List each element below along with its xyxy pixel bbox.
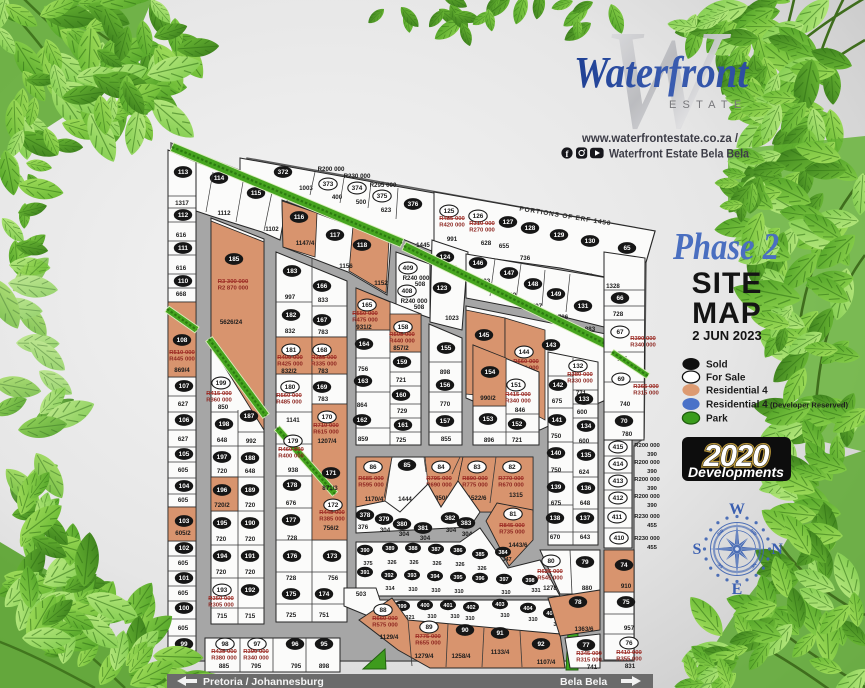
svg-text:136: 136 xyxy=(581,485,592,492)
svg-text:153: 153 xyxy=(483,416,494,423)
svg-text:R3 300 000: R3 300 000 xyxy=(218,279,249,285)
svg-text:100: 100 xyxy=(179,605,190,612)
svg-text:R400 000: R400 000 xyxy=(277,355,303,361)
svg-text:R440 000: R440 000 xyxy=(389,338,415,344)
svg-text:174: 174 xyxy=(319,591,330,598)
svg-text:314: 314 xyxy=(385,586,395,592)
svg-text:380: 380 xyxy=(397,521,408,528)
svg-text:382: 382 xyxy=(445,515,456,522)
svg-text:176: 176 xyxy=(287,553,298,560)
svg-text:720: 720 xyxy=(245,536,256,543)
svg-text:600: 600 xyxy=(579,438,590,445)
svg-text:347: 347 xyxy=(502,557,511,563)
svg-text:750: 750 xyxy=(551,467,562,474)
svg-text:750: 750 xyxy=(551,433,562,440)
svg-text:728: 728 xyxy=(286,575,297,582)
svg-text:783: 783 xyxy=(318,396,329,403)
svg-text:75: 75 xyxy=(622,599,630,606)
svg-text:R200 000: R200 000 xyxy=(634,460,660,466)
svg-text:R655 000: R655 000 xyxy=(415,640,441,646)
svg-text:411: 411 xyxy=(612,514,623,521)
svg-text:79: 79 xyxy=(581,559,589,566)
svg-text:855: 855 xyxy=(441,436,452,443)
svg-text:675: 675 xyxy=(551,500,562,507)
svg-text:R335 000: R335 000 xyxy=(311,361,337,367)
svg-text:195: 195 xyxy=(217,520,228,527)
svg-text:623: 623 xyxy=(381,207,392,214)
svg-text:R595 000: R595 000 xyxy=(358,482,384,488)
svg-text:756: 756 xyxy=(358,366,369,373)
svg-text:326: 326 xyxy=(432,561,441,567)
svg-text:R385 000: R385 000 xyxy=(319,516,345,522)
svg-text:415: 415 xyxy=(613,444,624,451)
svg-text:168: 168 xyxy=(317,347,328,354)
svg-text:605: 605 xyxy=(178,467,189,474)
svg-text:R485 000: R485 000 xyxy=(439,216,465,222)
svg-text:169: 169 xyxy=(317,384,328,391)
svg-text:108: 108 xyxy=(177,337,188,344)
svg-text:379: 379 xyxy=(379,516,390,523)
svg-text:R550 000: R550 000 xyxy=(352,311,378,317)
svg-text:728: 728 xyxy=(287,535,298,542)
svg-text:408: 408 xyxy=(402,288,413,295)
svg-text:397: 397 xyxy=(499,577,508,583)
svg-text:138: 138 xyxy=(550,515,561,522)
svg-text:102: 102 xyxy=(179,545,190,552)
svg-text:871/3: 871/3 xyxy=(322,485,338,492)
svg-text:304: 304 xyxy=(446,527,457,534)
svg-text:67: 67 xyxy=(616,329,624,336)
svg-text:R390 000: R390 000 xyxy=(243,649,269,655)
svg-text:1112: 1112 xyxy=(217,210,231,217)
svg-text:145: 145 xyxy=(479,332,490,339)
svg-text:402: 402 xyxy=(466,605,475,611)
svg-text:Residential 4: Residential 4 xyxy=(706,400,768,411)
svg-text:128: 128 xyxy=(525,225,536,232)
svg-text:375: 375 xyxy=(377,193,388,200)
svg-text:310: 310 xyxy=(465,616,474,622)
svg-text:721: 721 xyxy=(512,437,523,444)
svg-text:373: 373 xyxy=(323,181,334,188)
svg-text:1107/4: 1107/4 xyxy=(537,659,556,666)
svg-text:5626/24: 5626/24 xyxy=(220,319,243,326)
svg-text:670: 670 xyxy=(550,534,561,541)
svg-text:1147/4: 1147/4 xyxy=(296,240,315,247)
svg-text:R510 000: R510 000 xyxy=(169,350,195,356)
svg-text:1279/4: 1279/4 xyxy=(415,653,434,660)
svg-text:179: 179 xyxy=(288,438,299,445)
svg-text:R355 000: R355 000 xyxy=(616,656,642,662)
svg-text:R230 000: R230 000 xyxy=(344,173,371,180)
svg-text:304: 304 xyxy=(420,535,431,542)
svg-text:395: 395 xyxy=(453,575,462,581)
svg-text:196: 196 xyxy=(217,487,228,494)
svg-text:600: 600 xyxy=(577,409,588,416)
svg-text:167: 167 xyxy=(317,317,328,324)
svg-text:898: 898 xyxy=(440,369,451,376)
svg-text:414: 414 xyxy=(613,461,624,468)
svg-text:SITE: SITE xyxy=(692,267,763,300)
svg-text:161: 161 xyxy=(398,422,409,429)
svg-text:165: 165 xyxy=(362,302,373,309)
svg-text:326: 326 xyxy=(387,560,396,566)
svg-text:725: 725 xyxy=(286,612,297,619)
svg-text:R625 000: R625 000 xyxy=(537,569,563,575)
svg-text:997: 997 xyxy=(285,294,296,301)
svg-text:Residential 4: Residential 4 xyxy=(706,386,768,397)
svg-text:376: 376 xyxy=(358,524,369,531)
svg-text:182: 182 xyxy=(286,312,297,319)
svg-text:R670 000: R670 000 xyxy=(498,482,524,488)
svg-text:846: 846 xyxy=(515,407,526,414)
svg-text:106: 106 xyxy=(179,417,190,424)
svg-text:R445 000: R445 000 xyxy=(319,510,345,516)
svg-text:770: 770 xyxy=(440,401,451,408)
svg-text:126: 126 xyxy=(473,213,484,220)
svg-text:R330 000: R330 000 xyxy=(567,378,593,384)
svg-text:92: 92 xyxy=(537,641,545,648)
svg-text:728: 728 xyxy=(613,311,624,318)
svg-text:655: 655 xyxy=(499,243,510,250)
svg-text:2 JUN 2023: 2 JUN 2023 xyxy=(692,328,761,343)
svg-text:648: 648 xyxy=(217,437,228,444)
svg-text:R560 000: R560 000 xyxy=(276,393,302,399)
svg-text:198: 198 xyxy=(219,421,230,428)
svg-text:304: 304 xyxy=(380,527,391,534)
svg-text:331: 331 xyxy=(531,588,540,594)
svg-text:R2 870 000: R2 870 000 xyxy=(218,285,249,291)
svg-text:R775 000: R775 000 xyxy=(462,482,488,488)
svg-text:154: 154 xyxy=(485,369,496,376)
svg-text:W: W xyxy=(729,501,745,518)
svg-text:729: 729 xyxy=(397,408,408,415)
svg-text:199: 199 xyxy=(216,380,227,387)
svg-text:R230 000: R230 000 xyxy=(634,536,660,542)
svg-text:741: 741 xyxy=(587,664,598,671)
svg-text:85: 85 xyxy=(403,462,411,469)
svg-text:R425 000: R425 000 xyxy=(277,361,303,367)
svg-text:127: 127 xyxy=(503,219,514,226)
svg-text:409: 409 xyxy=(403,265,414,272)
svg-text:783: 783 xyxy=(318,329,329,336)
svg-text:885: 885 xyxy=(219,663,230,670)
svg-text:133: 133 xyxy=(579,396,590,403)
svg-text:192: 192 xyxy=(245,587,256,594)
svg-text:66: 66 xyxy=(616,295,624,302)
svg-text:R360 000: R360 000 xyxy=(206,397,232,403)
svg-text:R775 000: R775 000 xyxy=(415,634,441,640)
svg-text:387: 387 xyxy=(431,547,440,553)
svg-text:627: 627 xyxy=(178,401,189,408)
svg-text:143: 143 xyxy=(546,342,557,349)
svg-text:R710 000: R710 000 xyxy=(313,423,339,429)
svg-text:375: 375 xyxy=(363,561,372,567)
svg-text:720: 720 xyxy=(245,569,256,576)
svg-text:82: 82 xyxy=(508,464,516,471)
svg-text:R485 000: R485 000 xyxy=(276,399,302,405)
svg-text:R365 000: R365 000 xyxy=(633,384,659,390)
svg-text:R200 000: R200 000 xyxy=(318,166,345,173)
svg-text:390: 390 xyxy=(647,469,658,475)
svg-text:310: 310 xyxy=(408,587,417,593)
svg-text:188: 188 xyxy=(245,455,256,462)
svg-text:896: 896 xyxy=(484,437,495,444)
svg-text:Sold: Sold xyxy=(706,360,728,371)
svg-text:137: 137 xyxy=(580,515,591,522)
svg-text:R415 000: R415 000 xyxy=(505,392,531,398)
svg-text:Park: Park xyxy=(706,414,728,425)
svg-text:166: 166 xyxy=(317,283,328,290)
svg-text:183: 183 xyxy=(287,268,298,275)
svg-text:736: 736 xyxy=(520,255,531,262)
svg-text:864: 864 xyxy=(357,402,368,409)
svg-text:1328: 1328 xyxy=(606,283,620,290)
svg-text:155: 155 xyxy=(441,345,452,352)
svg-text:118: 118 xyxy=(357,242,368,249)
svg-text:187: 187 xyxy=(244,413,255,420)
svg-text:740: 740 xyxy=(620,401,631,408)
svg-text:130: 130 xyxy=(585,238,596,245)
svg-text:383: 383 xyxy=(461,520,472,527)
svg-text:627: 627 xyxy=(178,436,189,443)
svg-text:392: 392 xyxy=(384,573,393,579)
svg-text:R340 000: R340 000 xyxy=(505,398,531,404)
svg-text:910: 910 xyxy=(621,583,632,590)
svg-text:R795 000: R795 000 xyxy=(426,476,452,482)
svg-text:R315 000: R315 000 xyxy=(633,390,659,396)
svg-text:832: 832 xyxy=(285,328,296,335)
svg-text:R435 000: R435 000 xyxy=(211,649,237,655)
svg-text:86: 86 xyxy=(369,464,377,471)
svg-text:Waterfront: Waterfront xyxy=(574,48,750,97)
svg-text:R385 000: R385 000 xyxy=(311,355,337,361)
svg-text:132: 132 xyxy=(573,363,584,370)
svg-text:123: 123 xyxy=(437,285,448,292)
svg-text:1156: 1156 xyxy=(339,263,353,270)
svg-text:R660 000: R660 000 xyxy=(372,616,398,622)
svg-text:80: 80 xyxy=(547,558,555,565)
svg-text:832/2: 832/2 xyxy=(281,368,297,375)
svg-text:310: 310 xyxy=(454,589,463,595)
svg-text:R735 000: R735 000 xyxy=(499,529,525,535)
svg-text:795: 795 xyxy=(251,663,262,670)
svg-text:859: 859 xyxy=(358,436,369,443)
svg-text:310: 310 xyxy=(450,614,459,620)
svg-text:648: 648 xyxy=(580,500,591,507)
svg-text:144: 144 xyxy=(519,349,530,356)
svg-text:1152: 1152 xyxy=(374,280,388,287)
svg-text:R410 000: R410 000 xyxy=(616,650,642,656)
svg-text:78: 78 xyxy=(574,599,582,606)
svg-text:134: 134 xyxy=(581,423,592,430)
svg-text:648: 648 xyxy=(245,468,256,475)
svg-text:1443/6: 1443/6 xyxy=(509,542,528,549)
svg-text:390: 390 xyxy=(360,548,369,554)
svg-text:725: 725 xyxy=(396,437,407,444)
svg-text:616: 616 xyxy=(176,232,187,239)
svg-text:R505 000: R505 000 xyxy=(389,332,415,338)
svg-text:721: 721 xyxy=(396,377,407,384)
svg-text:389: 389 xyxy=(385,546,394,552)
svg-text:104: 104 xyxy=(179,483,190,490)
svg-text:R475 000: R475 000 xyxy=(352,317,378,323)
svg-text:381: 381 xyxy=(418,525,429,532)
svg-text:170: 170 xyxy=(322,414,333,421)
svg-text:159: 159 xyxy=(397,359,408,366)
svg-text:393: 393 xyxy=(407,573,416,579)
svg-text:326: 326 xyxy=(455,562,464,568)
svg-text:990/2: 990/2 xyxy=(480,395,496,402)
svg-text:991: 991 xyxy=(447,236,458,243)
svg-text:1315: 1315 xyxy=(509,492,523,499)
svg-text:605: 605 xyxy=(178,590,189,597)
svg-text:177: 177 xyxy=(286,517,297,524)
svg-text:931/2: 931/2 xyxy=(356,324,372,331)
svg-text:135: 135 xyxy=(581,452,592,459)
svg-text:65: 65 xyxy=(623,245,631,252)
svg-text:310: 310 xyxy=(500,613,509,619)
svg-text:1102: 1102 xyxy=(265,226,279,233)
svg-text:676: 676 xyxy=(286,500,297,507)
svg-text:113: 113 xyxy=(178,169,189,176)
svg-text:R380 000: R380 000 xyxy=(211,655,237,661)
svg-text:164: 164 xyxy=(359,341,370,348)
svg-text:390: 390 xyxy=(647,503,658,509)
svg-text:111: 111 xyxy=(178,245,188,252)
svg-text:ESTATE: ESTATE xyxy=(669,99,747,111)
svg-text:898: 898 xyxy=(319,663,330,670)
svg-text:390: 390 xyxy=(647,452,658,458)
svg-text:388: 388 xyxy=(408,546,417,552)
svg-text:110: 110 xyxy=(178,278,189,285)
svg-text:R340 000: R340 000 xyxy=(630,342,656,348)
svg-text:304: 304 xyxy=(399,531,410,538)
svg-text:624: 624 xyxy=(579,469,590,476)
svg-text:1207/4: 1207/4 xyxy=(318,438,337,445)
svg-text:95: 95 xyxy=(320,641,328,648)
svg-text:98: 98 xyxy=(221,641,229,648)
svg-text:149: 149 xyxy=(551,291,562,298)
svg-text:172: 172 xyxy=(328,502,339,509)
svg-text:384: 384 xyxy=(498,550,508,556)
svg-text:R685 000: R685 000 xyxy=(358,476,384,482)
svg-text:R305 000: R305 000 xyxy=(208,602,234,608)
svg-text:404: 404 xyxy=(523,606,533,612)
svg-text:R200 000: R200 000 xyxy=(634,477,660,483)
svg-text:783: 783 xyxy=(318,368,329,375)
svg-text:194: 194 xyxy=(217,553,228,560)
svg-text:503: 503 xyxy=(356,591,367,598)
svg-text:R460 000: R460 000 xyxy=(278,447,304,453)
svg-text:396: 396 xyxy=(475,576,484,582)
svg-text:374: 374 xyxy=(352,185,363,192)
svg-text:310: 310 xyxy=(528,617,537,623)
svg-text:756/2: 756/2 xyxy=(323,525,339,532)
svg-text:141: 141 xyxy=(552,417,563,424)
svg-text:R380 000: R380 000 xyxy=(567,372,593,378)
svg-text:1258/4: 1258/4 xyxy=(452,653,471,660)
svg-text:151: 151 xyxy=(511,382,522,389)
svg-text:97: 97 xyxy=(253,641,261,648)
svg-text:156: 156 xyxy=(440,382,451,389)
svg-text:Developments: Developments xyxy=(688,465,785,480)
svg-text:1129/4: 1129/4 xyxy=(380,634,399,641)
svg-text:938: 938 xyxy=(288,467,299,474)
svg-text:720: 720 xyxy=(217,468,228,475)
svg-text:Phase 2: Phase 2 xyxy=(672,226,779,268)
svg-text:173: 173 xyxy=(327,553,338,560)
svg-text:175: 175 xyxy=(286,591,297,598)
svg-text:957: 957 xyxy=(624,625,635,632)
svg-text:81: 81 xyxy=(509,511,517,518)
svg-text:R545 000: R545 000 xyxy=(537,575,563,581)
svg-text:412: 412 xyxy=(613,495,624,502)
svg-text:R270 000: R270 000 xyxy=(469,227,495,233)
svg-text:1278: 1278 xyxy=(543,585,557,592)
svg-text:720: 720 xyxy=(216,569,227,576)
svg-text:508: 508 xyxy=(414,304,425,311)
svg-text:157: 157 xyxy=(440,418,451,425)
svg-text:1141: 1141 xyxy=(286,417,300,424)
svg-text:628: 628 xyxy=(481,240,492,247)
svg-text:139: 139 xyxy=(551,484,562,491)
svg-text:88: 88 xyxy=(379,607,387,614)
svg-text:89: 89 xyxy=(425,624,433,631)
svg-text:101: 101 xyxy=(179,575,190,582)
svg-text:605/2: 605/2 xyxy=(175,530,191,537)
svg-text:R345 000: R345 000 xyxy=(576,651,602,657)
svg-text:310: 310 xyxy=(501,590,510,596)
svg-text:Pretoria / Johannesburg: Pretoria / Johannesburg xyxy=(203,676,324,688)
svg-text:148: 148 xyxy=(528,281,539,288)
svg-text:114: 114 xyxy=(214,175,225,182)
svg-text:162: 162 xyxy=(357,417,368,424)
svg-text:720: 720 xyxy=(245,502,256,509)
svg-text:125: 125 xyxy=(444,208,455,215)
svg-text:140: 140 xyxy=(551,450,562,457)
svg-text:326: 326 xyxy=(477,566,486,572)
svg-text:310: 310 xyxy=(427,614,436,620)
svg-text:146: 146 xyxy=(473,260,484,267)
svg-text:197: 197 xyxy=(217,454,228,461)
svg-text:605: 605 xyxy=(178,625,189,632)
svg-text:780: 780 xyxy=(622,431,633,438)
svg-text:178: 178 xyxy=(287,482,298,489)
svg-text:751: 751 xyxy=(319,612,330,619)
svg-text:R400 000: R400 000 xyxy=(278,453,304,459)
svg-text:795: 795 xyxy=(291,663,302,670)
svg-text:E: E xyxy=(732,581,743,598)
svg-text:1023: 1023 xyxy=(445,315,459,322)
svg-text:500: 500 xyxy=(356,199,367,206)
svg-text:MAP: MAP xyxy=(692,297,762,330)
svg-text:(Developer Reserved): (Developer Reserved) xyxy=(770,401,849,410)
svg-text:R310 000: R310 000 xyxy=(469,221,495,227)
svg-text:401: 401 xyxy=(443,603,452,609)
svg-text:R230 000: R230 000 xyxy=(634,514,660,520)
svg-text:869/4: 869/4 xyxy=(174,367,190,374)
svg-text:Bela Bela: Bela Bela xyxy=(560,676,607,688)
svg-text:189: 189 xyxy=(245,487,256,494)
svg-text:181: 181 xyxy=(286,347,297,354)
svg-text:850: 850 xyxy=(218,404,229,411)
svg-text:394: 394 xyxy=(430,574,440,580)
svg-text:378: 378 xyxy=(360,512,371,519)
svg-text:103: 103 xyxy=(179,518,190,525)
svg-text:R615 000: R615 000 xyxy=(313,429,339,435)
svg-text:70: 70 xyxy=(620,418,628,425)
svg-text:142: 142 xyxy=(553,382,564,389)
